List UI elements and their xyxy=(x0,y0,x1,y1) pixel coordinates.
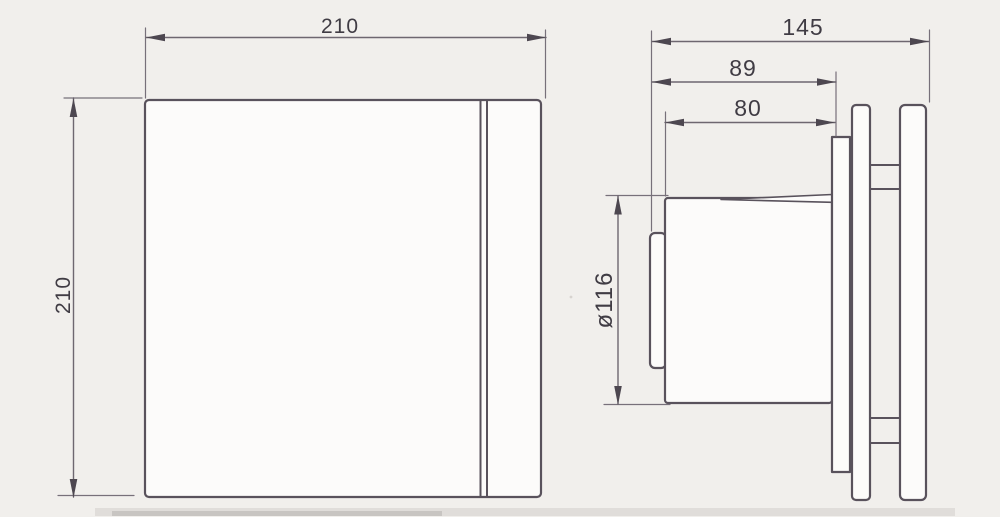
arrowhead-right xyxy=(527,34,546,42)
mounting-flange-inner xyxy=(832,137,850,472)
arrowhead-up xyxy=(614,196,622,215)
arrowhead-right xyxy=(817,78,836,86)
dim-label-front-height: 210 xyxy=(52,276,75,314)
dim-label-front-width: 210 xyxy=(321,15,359,38)
flange-spacer-bottom xyxy=(870,418,900,443)
arrowhead-down xyxy=(614,386,622,405)
dim-label-overall-depth: 145 xyxy=(782,14,823,40)
side-view xyxy=(650,105,926,500)
fan-dimension-drawing: 210 210 145 89 xyxy=(0,0,1000,517)
duct-body xyxy=(665,198,832,403)
arrowhead-left xyxy=(652,78,671,86)
shadow-smudge xyxy=(112,511,442,516)
dim-label-duct-diameter: ø116 xyxy=(591,272,618,329)
front-panel xyxy=(145,100,541,497)
duct-collar xyxy=(650,233,666,368)
flange-spacer-top xyxy=(870,165,900,189)
drawing-page: 210 210 145 89 xyxy=(0,0,1000,517)
dim-side-body-depth: 80 xyxy=(665,95,835,196)
mounting-plate xyxy=(852,105,870,500)
wall-flange-outer xyxy=(900,105,926,500)
dim-front-height: 210 xyxy=(52,98,142,498)
arrowhead-right xyxy=(816,119,835,127)
arrowhead-left xyxy=(146,34,165,42)
arrowhead-up xyxy=(70,98,78,117)
dim-label-body-depth: 80 xyxy=(734,95,762,121)
arrowhead-left xyxy=(665,119,684,127)
arrowhead-left xyxy=(652,38,671,46)
dust-speck xyxy=(570,296,573,299)
front-view xyxy=(145,100,541,497)
dim-label-flange-depth: 89 xyxy=(729,55,757,81)
dim-front-width: 210 xyxy=(146,15,547,98)
arrowhead-right xyxy=(910,38,929,46)
